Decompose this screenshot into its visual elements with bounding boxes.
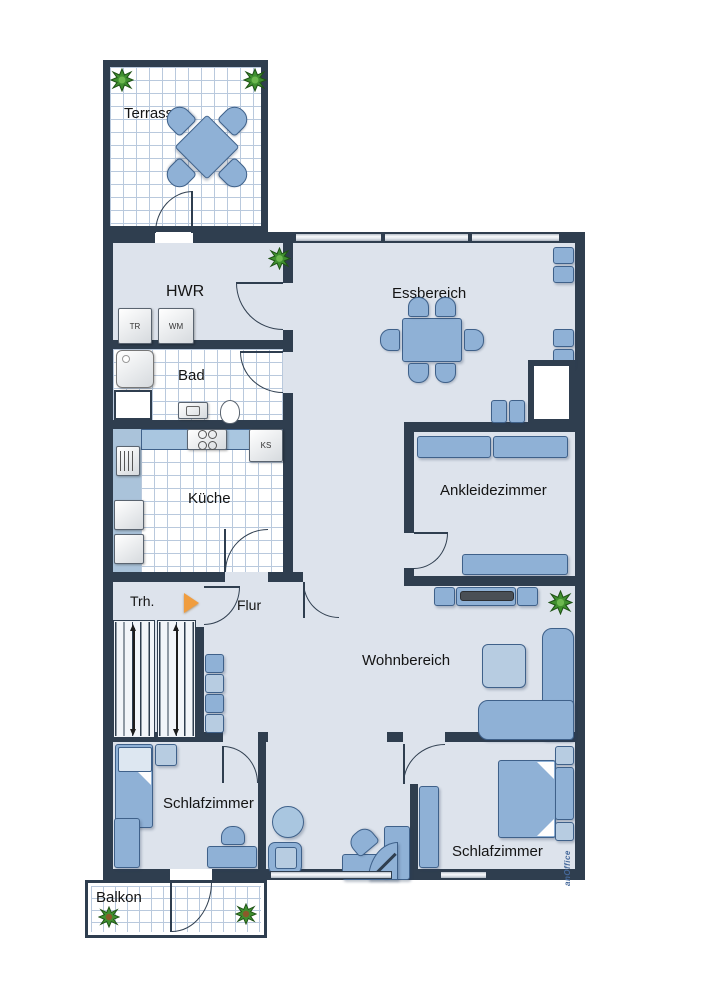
plant-icon <box>235 903 257 925</box>
wall-segment <box>404 432 414 533</box>
dining-chair <box>408 297 429 317</box>
window <box>295 233 560 242</box>
dryer-label: TR <box>130 322 141 331</box>
cabinet <box>509 400 525 423</box>
shelf <box>205 654 224 673</box>
washer-appliance: WM <box>158 308 194 344</box>
wall-segment <box>387 732 403 742</box>
cabinet <box>491 400 507 423</box>
dressing-label: Ankleidezimmer <box>440 482 547 499</box>
watermark: anOffice <box>563 824 579 886</box>
wall-segment <box>575 232 585 880</box>
shelf <box>205 714 224 733</box>
washer-label: WM <box>169 322 183 331</box>
shower <box>116 350 154 388</box>
plant-icon <box>110 68 134 92</box>
stair-arrow-up <box>173 624 179 631</box>
corridor-label: Flur <box>237 597 261 613</box>
stair-arrow-up <box>130 624 136 631</box>
wardrobe <box>419 786 439 868</box>
desk <box>207 846 257 868</box>
bedroom-right-door-leaf <box>403 744 405 784</box>
fridge-label: KS <box>261 441 272 450</box>
desk-chair <box>221 826 245 845</box>
radiator <box>116 446 140 476</box>
wall-segment <box>268 572 303 582</box>
stair-direction-line <box>133 628 135 730</box>
bedroom-left-label: Schlafzimmer <box>163 795 254 812</box>
blanket-fold <box>138 772 151 785</box>
living-door-leaf <box>303 582 305 618</box>
balcony-door-leaf <box>170 882 172 932</box>
balcony-label: Balkon <box>96 889 142 906</box>
dining-chair <box>435 297 456 317</box>
fridge: KS <box>249 429 283 462</box>
wall-segment <box>283 393 293 572</box>
round-table <box>272 806 304 838</box>
shaft <box>528 360 575 425</box>
wall-segment <box>258 732 268 742</box>
sideboard <box>553 266 574 283</box>
window <box>440 871 487 879</box>
coffee-table <box>482 644 526 688</box>
bath-label: Bad <box>178 367 205 384</box>
hwr-label: HWR <box>166 283 204 301</box>
wardrobe <box>417 436 491 458</box>
plant-icon <box>548 590 573 615</box>
stair-direction-line <box>176 628 178 730</box>
hwr-door-leaf <box>236 282 283 284</box>
wall-segment <box>103 232 113 880</box>
armchair-cushion <box>275 847 297 869</box>
blanket-fold <box>537 762 554 779</box>
shelf <box>205 694 224 713</box>
headboard <box>555 767 574 820</box>
stove <box>187 429 227 450</box>
wall-segment <box>404 576 575 586</box>
dishwasher <box>114 534 144 564</box>
dressing-door-leaf <box>414 532 448 534</box>
entrance-arrow <box>184 593 199 613</box>
bedroom-left-door-leaf <box>222 746 224 783</box>
blanket-fold <box>537 819 554 836</box>
bath-shaft <box>114 390 152 420</box>
stair-arrow-down <box>130 729 136 736</box>
wall-segment <box>103 572 225 582</box>
kitchen-door-leaf <box>224 529 226 572</box>
dining-chair <box>435 363 456 383</box>
shelf <box>205 674 224 693</box>
nightstand <box>155 744 177 766</box>
terrace-door-leaf <box>191 191 193 233</box>
terrace-door-gap <box>155 232 193 243</box>
bath-door-leaf <box>240 351 283 353</box>
dining-chair <box>380 329 400 351</box>
wall-segment <box>410 784 418 869</box>
wardrobe <box>114 818 140 868</box>
stair-arrow-down <box>173 729 179 736</box>
sink <box>178 402 208 419</box>
dresser <box>462 554 568 575</box>
hall-door-leaf <box>204 586 240 588</box>
plant-icon <box>268 247 291 270</box>
oven <box>114 500 144 530</box>
window-mullion <box>381 232 385 243</box>
wall-segment <box>113 420 283 429</box>
balcony-door-gap <box>170 869 212 880</box>
pillow <box>118 747 152 772</box>
toilet <box>220 400 240 424</box>
tv-sideboard <box>434 587 455 606</box>
sofa <box>478 700 574 740</box>
sideboard <box>553 247 574 264</box>
dining-chair <box>464 329 484 351</box>
kitchen-label: Küche <box>188 490 231 507</box>
dryer-appliance: TR <box>118 308 152 344</box>
living-label: Wohnbereich <box>362 652 450 669</box>
plant-icon <box>98 906 120 928</box>
shower-drain <box>122 355 130 363</box>
stairwell-label: Trh. <box>130 593 154 609</box>
wall-segment <box>258 742 266 869</box>
window-mullion <box>468 232 472 243</box>
wardrobe <box>493 436 568 458</box>
nightstand <box>555 746 574 765</box>
tv-sideboard <box>517 587 538 606</box>
floor-plan: Terrasse HWR TR WM Bad <box>0 0 706 1000</box>
wall-segment <box>196 627 204 742</box>
window <box>270 871 392 879</box>
dining-chair <box>408 363 429 383</box>
bedroom-right-label: Schlafzimmer <box>452 843 543 860</box>
dining-label: Essbereich <box>392 285 466 302</box>
plant-icon <box>243 68 267 92</box>
wall-segment <box>283 330 293 352</box>
dining-table <box>402 318 462 362</box>
tv <box>460 591 514 601</box>
sideboard <box>553 329 574 347</box>
